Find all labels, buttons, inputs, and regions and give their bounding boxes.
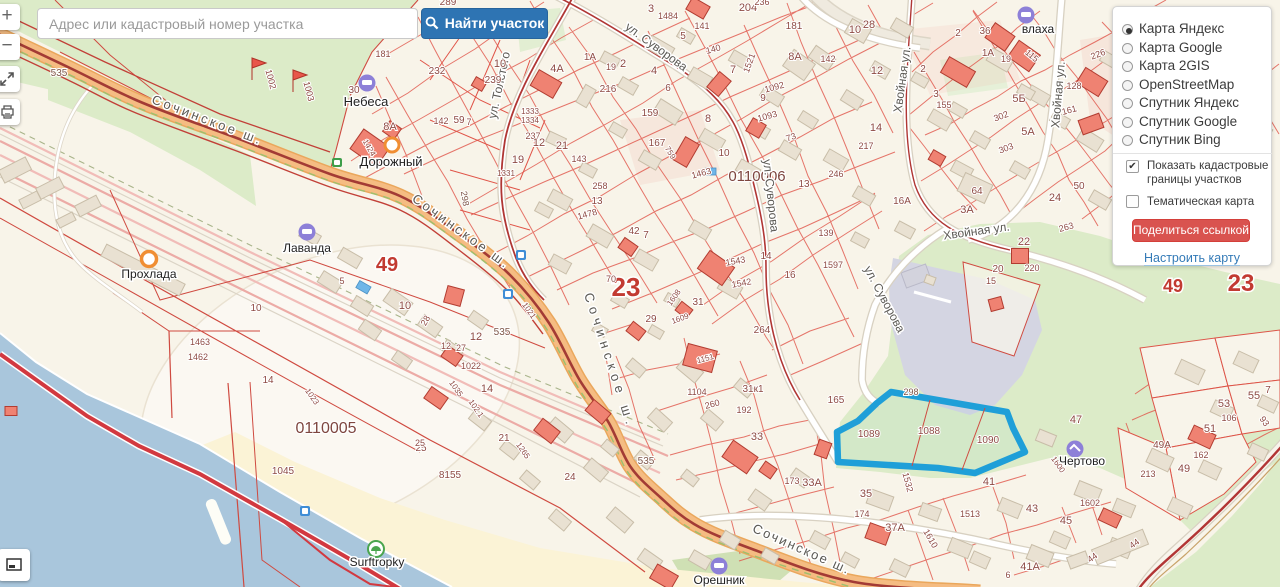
svg-text:1484: 1484 (658, 11, 678, 21)
svg-text:Лаванда: Лаванда (283, 241, 331, 255)
svg-text:165: 165 (828, 395, 845, 406)
svg-text:10: 10 (250, 303, 262, 314)
svg-text:15: 15 (986, 276, 996, 286)
svg-text:55: 55 (1248, 390, 1260, 402)
svg-text:2: 2 (920, 64, 926, 75)
svg-text:181: 181 (375, 49, 390, 59)
svg-text:8А: 8А (788, 51, 802, 63)
svg-text:1045: 1045 (272, 466, 295, 477)
svg-text:50: 50 (1073, 181, 1085, 192)
svg-text:142: 142 (820, 54, 835, 64)
svg-text:1333: 1333 (521, 107, 539, 116)
svg-text:Прохлада: Прохлада (121, 267, 177, 281)
svg-text:59: 59 (453, 115, 465, 126)
svg-text:33: 33 (751, 431, 763, 443)
svg-text:12: 12 (871, 65, 883, 77)
svg-text:232: 232 (429, 66, 446, 77)
svg-text:535: 535 (51, 68, 68, 79)
svg-text:19: 19 (606, 62, 616, 72)
svg-text:43: 43 (1026, 503, 1038, 515)
svg-text:7: 7 (643, 230, 649, 241)
svg-text:3: 3 (648, 3, 654, 15)
svg-text:289: 289 (440, 0, 457, 8)
svg-text:1331: 1331 (497, 169, 515, 178)
svg-text:36: 36 (979, 26, 991, 37)
svg-text:10: 10 (849, 24, 861, 36)
svg-text:41: 41 (983, 476, 995, 488)
svg-text:64: 64 (971, 186, 983, 197)
svg-text:128: 128 (1066, 81, 1081, 91)
svg-text:19: 19 (512, 154, 524, 166)
svg-text:192: 192 (736, 405, 751, 415)
svg-text:7: 7 (730, 64, 736, 76)
svg-text:7: 7 (1265, 385, 1271, 396)
svg-text:влаха: влаха (1022, 22, 1055, 36)
svg-text:8155: 8155 (439, 470, 462, 481)
svg-text:12: 12 (470, 331, 482, 343)
svg-text:10: 10 (718, 148, 730, 159)
svg-text:51: 51 (1204, 423, 1216, 435)
svg-text:1463: 1463 (190, 337, 210, 347)
svg-text:141: 141 (694, 21, 709, 31)
svg-text:6: 6 (665, 83, 671, 94)
svg-text:41А: 41А (1020, 561, 1040, 573)
svg-text:16: 16 (784, 270, 796, 281)
svg-text:42: 42 (628, 226, 640, 237)
svg-text:31к1: 31к1 (742, 384, 763, 395)
svg-text:14: 14 (262, 375, 274, 386)
svg-text:2: 2 (620, 58, 626, 70)
svg-text:5: 5 (339, 276, 344, 286)
svg-text:1А: 1А (584, 52, 597, 63)
svg-text:24: 24 (1049, 192, 1061, 204)
svg-text:49: 49 (1178, 463, 1190, 475)
svg-text:Небеса: Небеса (344, 94, 390, 109)
svg-text:1089: 1089 (858, 429, 881, 440)
svg-text:31: 31 (692, 297, 704, 308)
svg-text:45: 45 (1060, 515, 1072, 527)
svg-text:10: 10 (399, 300, 411, 312)
svg-text:49: 49 (1163, 276, 1183, 296)
svg-text:162: 162 (1193, 450, 1208, 460)
svg-text:4А: 4А (550, 63, 564, 75)
svg-text:181: 181 (786, 21, 803, 32)
svg-text:3: 3 (933, 89, 939, 100)
svg-text:29: 29 (645, 314, 657, 325)
svg-text:49А: 49А (1153, 440, 1171, 451)
svg-text:217: 217 (858, 141, 873, 151)
svg-text:246: 246 (828, 169, 843, 179)
svg-text:24: 24 (564, 472, 576, 483)
svg-text:10: 10 (494, 58, 506, 70)
svg-text:1022: 1022 (461, 361, 481, 371)
svg-text:6: 6 (1005, 570, 1010, 580)
svg-text:236: 236 (754, 0, 769, 7)
svg-text:264: 264 (754, 325, 771, 336)
svg-text:1104: 1104 (687, 387, 706, 397)
svg-text:0110005: 0110005 (295, 420, 356, 437)
svg-text:220: 220 (1024, 263, 1039, 273)
svg-text:13: 13 (798, 179, 810, 190)
svg-text:12: 12 (441, 341, 451, 351)
svg-text:258: 258 (592, 181, 607, 191)
svg-text:2: 2 (955, 28, 961, 39)
svg-text:4: 4 (651, 65, 657, 77)
svg-text:33А: 33А (802, 477, 822, 489)
svg-text:25: 25 (415, 438, 425, 448)
svg-text:167: 167 (649, 138, 666, 149)
svg-text:1597: 1597 (823, 260, 843, 270)
svg-text:27: 27 (456, 343, 466, 353)
svg-text:Surftropky: Surftropky (350, 555, 405, 569)
svg-text:5А: 5А (1021, 126, 1035, 138)
svg-text:53: 53 (1218, 398, 1230, 410)
svg-text:Дорожный: Дорожный (360, 154, 423, 169)
svg-text:1602: 1602 (1080, 498, 1100, 508)
svg-text:3А: 3А (960, 204, 974, 216)
svg-text:239: 239 (485, 75, 502, 86)
svg-text:173: 173 (784, 476, 799, 486)
svg-text:7: 7 (466, 117, 471, 127)
svg-text:143: 143 (571, 154, 586, 164)
svg-text:213: 213 (1140, 469, 1155, 479)
svg-text:139: 139 (818, 228, 833, 238)
svg-text:1А: 1А (982, 48, 995, 59)
svg-text:1334: 1334 (521, 116, 539, 125)
svg-text:13: 13 (591, 196, 603, 207)
svg-text:47: 47 (1070, 414, 1082, 426)
svg-text:20: 20 (992, 264, 1004, 275)
svg-text:1088: 1088 (918, 426, 941, 437)
svg-text:216: 216 (600, 84, 617, 95)
svg-text:16А: 16А (893, 196, 911, 207)
svg-text:14: 14 (481, 383, 493, 395)
svg-text:106: 106 (1221, 413, 1236, 423)
svg-text:298: 298 (903, 387, 918, 397)
svg-text:8: 8 (705, 113, 711, 125)
svg-text:70: 70 (606, 274, 616, 284)
svg-text:19: 19 (1001, 54, 1011, 64)
svg-text:535: 535 (638, 456, 655, 467)
svg-text:5: 5 (680, 31, 686, 42)
svg-text:Чертово: Чертово (1059, 454, 1105, 468)
svg-text:142: 142 (433, 116, 448, 126)
svg-text:5Б: 5Б (1012, 93, 1025, 105)
svg-text:Орешник: Орешник (694, 573, 746, 587)
svg-text:535: 535 (494, 327, 511, 338)
svg-text:14: 14 (870, 122, 882, 134)
svg-text:22: 22 (1018, 236, 1030, 248)
svg-text:21: 21 (556, 140, 568, 152)
svg-text:35: 35 (860, 488, 872, 500)
svg-text:159: 159 (642, 108, 659, 119)
svg-text:49: 49 (376, 254, 398, 276)
svg-text:155: 155 (936, 100, 951, 110)
svg-text:8А: 8А (383, 121, 397, 133)
svg-text:28: 28 (863, 19, 875, 31)
svg-text:14: 14 (760, 251, 772, 262)
svg-text:1462: 1462 (188, 352, 208, 362)
svg-text:12: 12 (533, 137, 545, 149)
svg-text:1090: 1090 (977, 435, 1000, 446)
svg-text:174: 174 (854, 509, 869, 519)
svg-text:21: 21 (498, 433, 510, 444)
svg-text:23: 23 (1228, 270, 1255, 297)
svg-text:1513: 1513 (960, 509, 980, 519)
svg-text:37А: 37А (885, 522, 905, 534)
